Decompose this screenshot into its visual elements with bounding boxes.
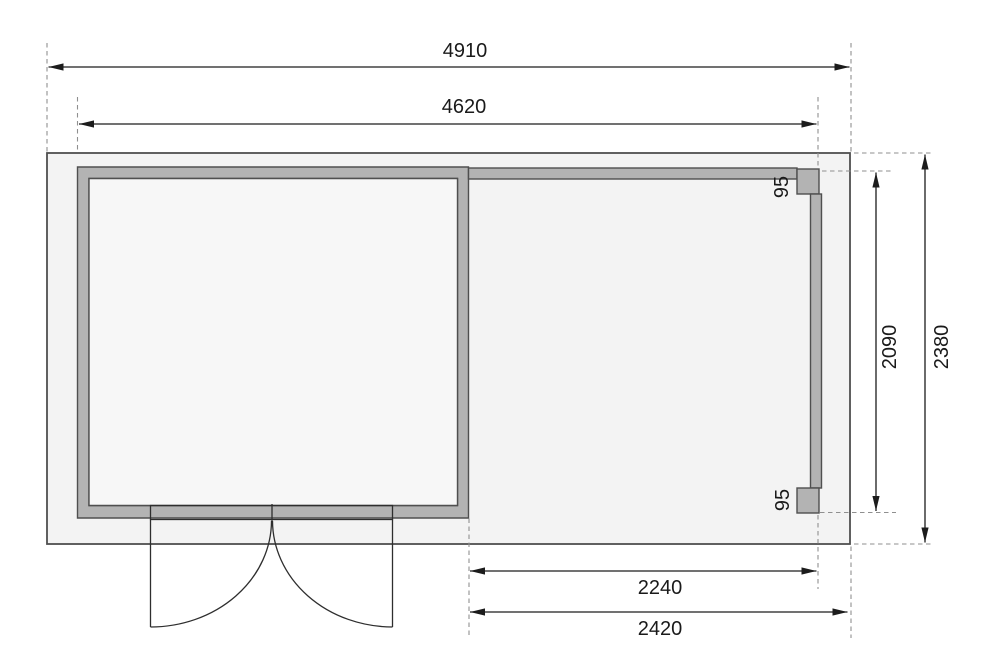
annex-side-beam (811, 194, 822, 488)
post-size-top-label: 95 (771, 176, 793, 198)
dim-annex-clear-width-label: 2240 (638, 577, 683, 599)
dim-total-depth-label: 2380 (931, 325, 953, 370)
floor-plan-drawing: 4910 4620 2380 2090 2240 2420 95 95 (0, 0, 1000, 670)
dim-total-width: 4910 (49, 40, 850, 67)
dim-house-width-label: 4620 (442, 96, 487, 118)
dim-total-width-label: 4910 (443, 40, 488, 62)
dim-annex-depth-label: 2090 (879, 325, 901, 370)
dim-annex-total-width-label: 2420 (638, 618, 683, 640)
room-walls (78, 167, 469, 518)
post-size-bottom-label: 95 (772, 489, 794, 511)
dim-house-width: 4620 (79, 96, 817, 124)
dim-annex-clear-width: 2240 (470, 571, 817, 599)
corner-post-top (797, 169, 819, 194)
dim-total-depth: 2380 (925, 155, 953, 543)
corner-post-bottom (797, 488, 819, 513)
annex-rear-wall-beam (469, 168, 798, 179)
dim-annex-depth: 2090 (876, 173, 901, 512)
dim-annex-total-width: 2420 (470, 612, 848, 640)
room-interior-floor (89, 179, 458, 506)
